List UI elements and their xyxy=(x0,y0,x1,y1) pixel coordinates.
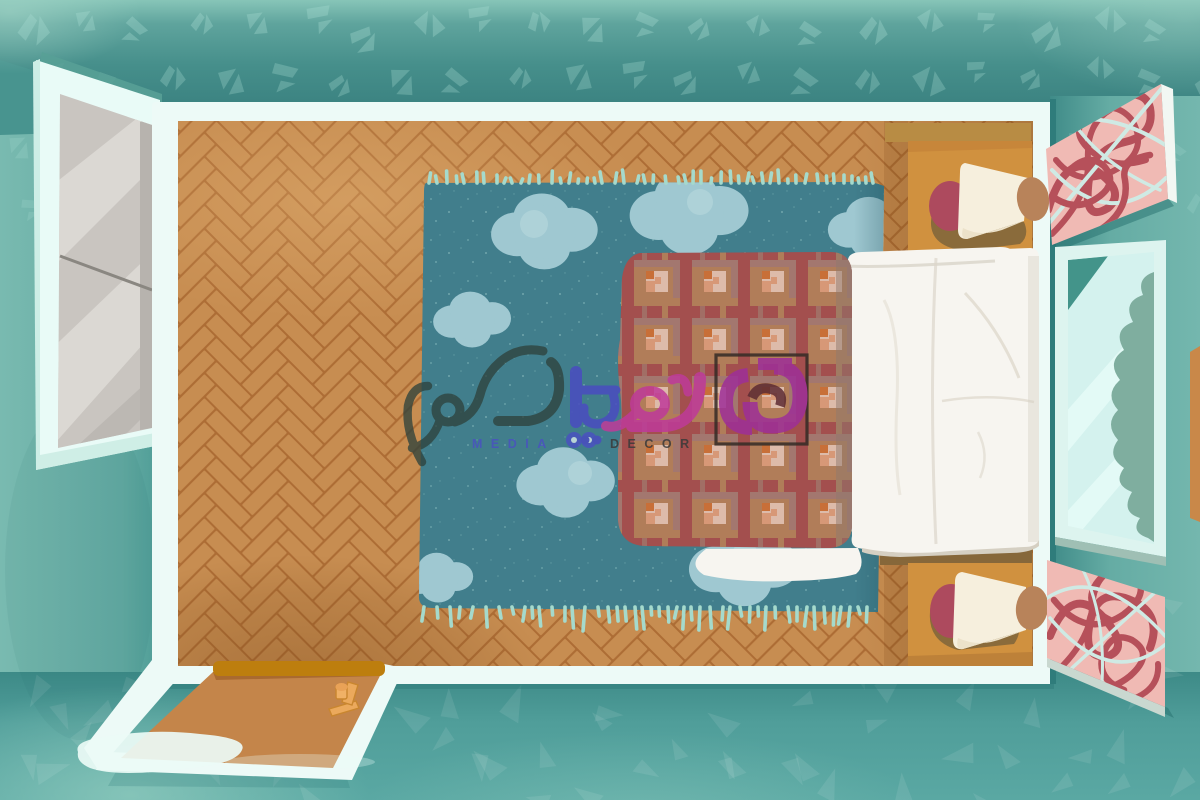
svg-text:DECOR: DECOR xyxy=(610,437,698,451)
svg-text:MEDIA: MEDIA xyxy=(472,437,555,451)
